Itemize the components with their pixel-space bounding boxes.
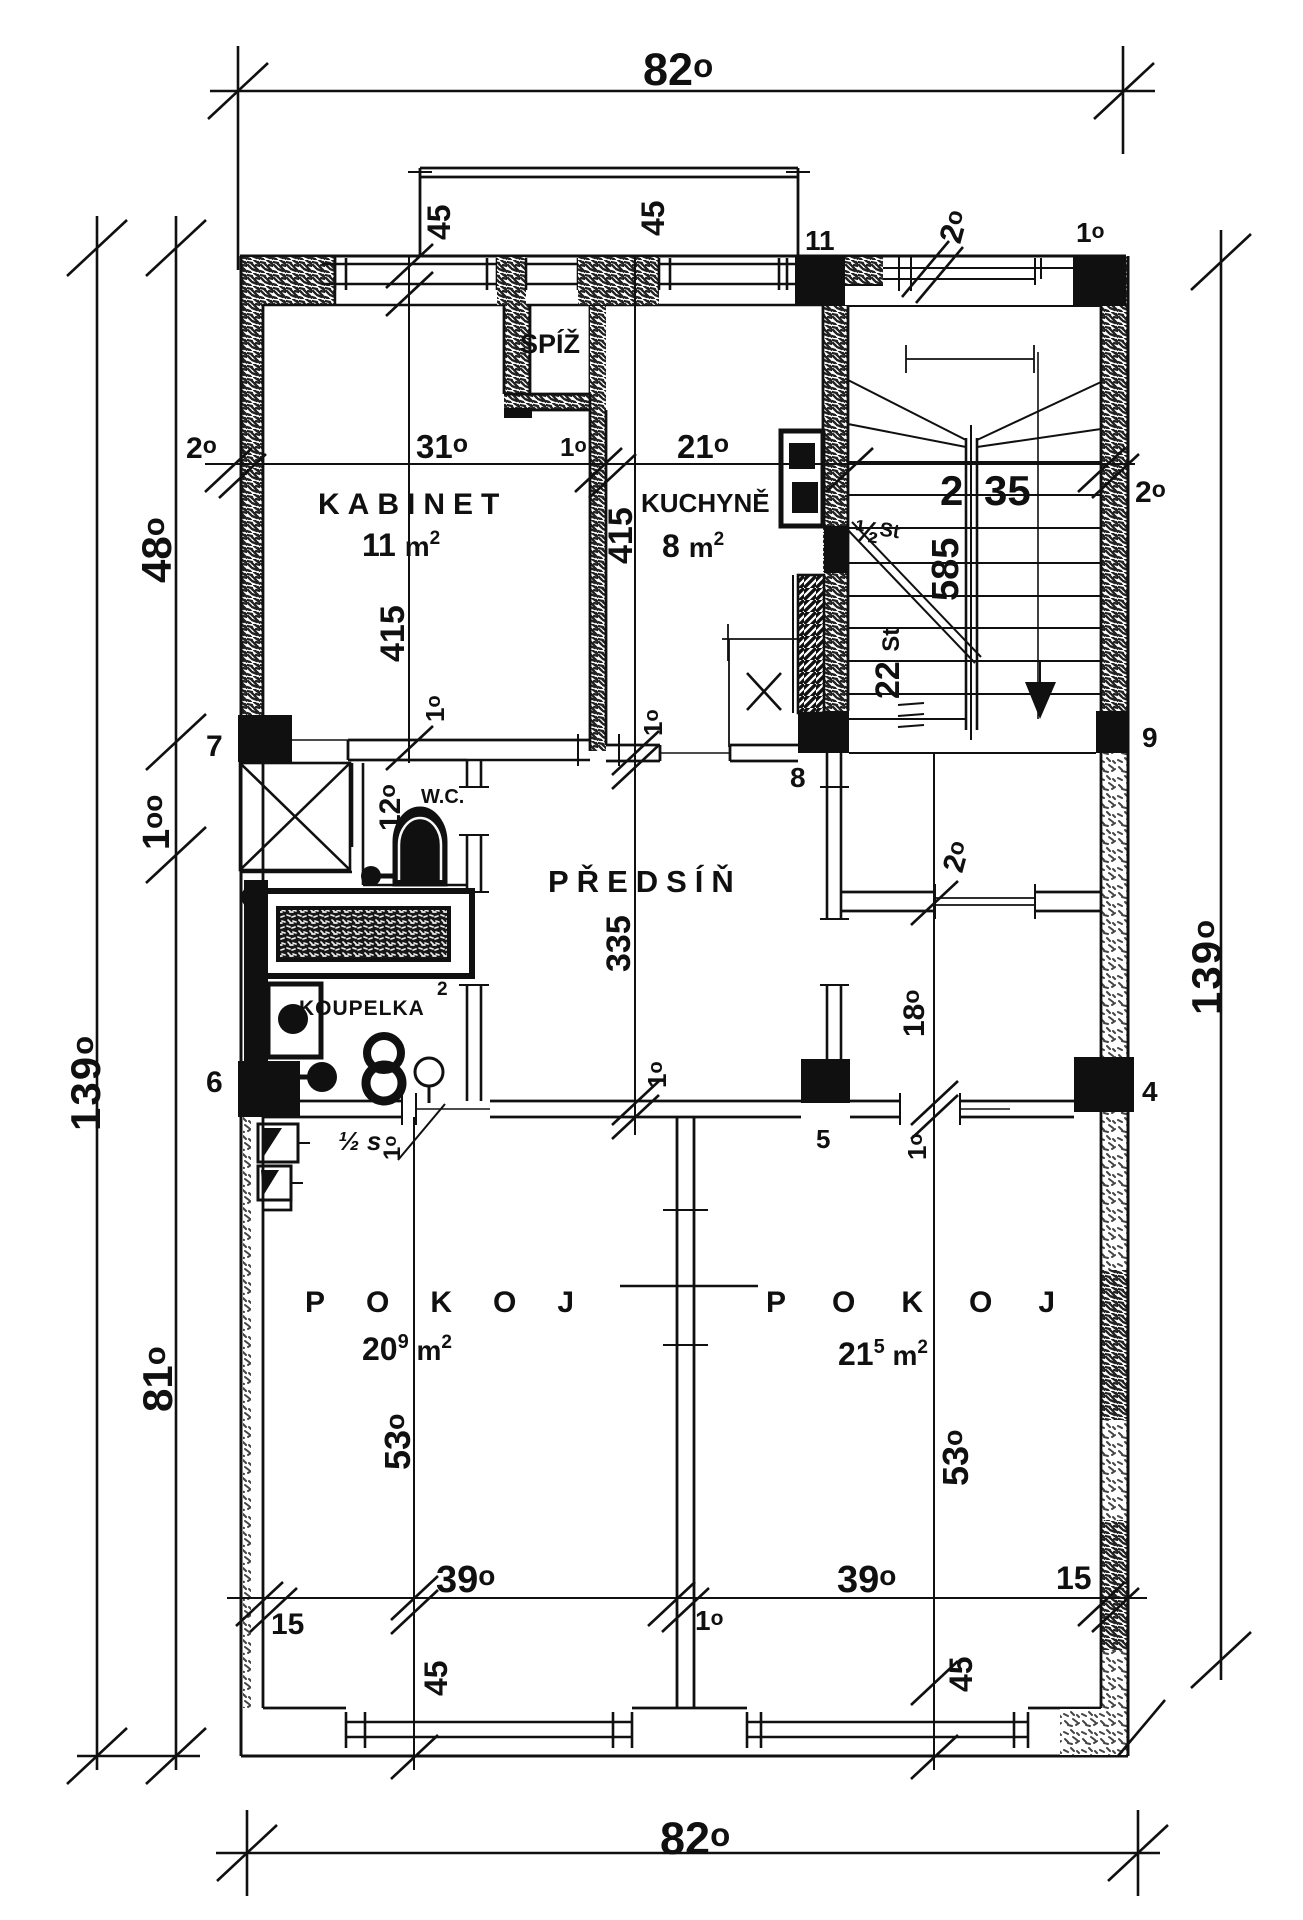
svg-text:PŘEDSÍŇ: PŘEDSÍŇ (548, 863, 742, 899)
svg-text:11: 11 (805, 225, 835, 256)
svg-text:15: 15 (271, 1608, 304, 1641)
svg-text:7: 7 (206, 730, 223, 763)
svg-text:15: 15 (1056, 1560, 1092, 1596)
svg-text:KUCHYNĚ: KUCHYNĚ (641, 488, 770, 518)
svg-text:5: 5 (816, 1124, 830, 1154)
svg-text:335: 335 (600, 915, 638, 972)
svg-text:9: 9 (1142, 722, 1158, 753)
svg-text:415: 415 (374, 605, 412, 662)
svg-text:2: 2 (940, 467, 963, 514)
svg-text:585: 585 (925, 538, 967, 601)
svg-text:POKOJ: POKOJ (766, 1286, 1101, 1319)
svg-text:45: 45 (635, 200, 671, 236)
svg-text:½ s: ½ s (338, 1126, 381, 1156)
svg-text:8: 8 (790, 762, 806, 793)
svg-text:45: 45 (943, 1656, 979, 1692)
svg-text:45: 45 (418, 1660, 454, 1696)
svg-text:POKOJ: POKOJ (305, 1286, 615, 1319)
svg-text:KABINET: KABINET (318, 488, 507, 521)
svg-text:11 m2: 11 m2 (362, 527, 440, 563)
svg-text:4: 4 (1142, 1076, 1158, 1107)
svg-text:W.C.: W.C. (421, 786, 464, 808)
svg-text:45: 45 (421, 204, 457, 240)
svg-text:415: 415 (602, 507, 640, 564)
svg-text:6: 6 (206, 1066, 223, 1099)
svg-text:35: 35 (984, 467, 1031, 514)
svg-text:KOUPELKA: KOUPELKA (299, 997, 425, 1020)
svg-text:2: 2 (437, 979, 448, 1000)
svg-text:SPÍŽ: SPÍŽ (520, 328, 580, 359)
